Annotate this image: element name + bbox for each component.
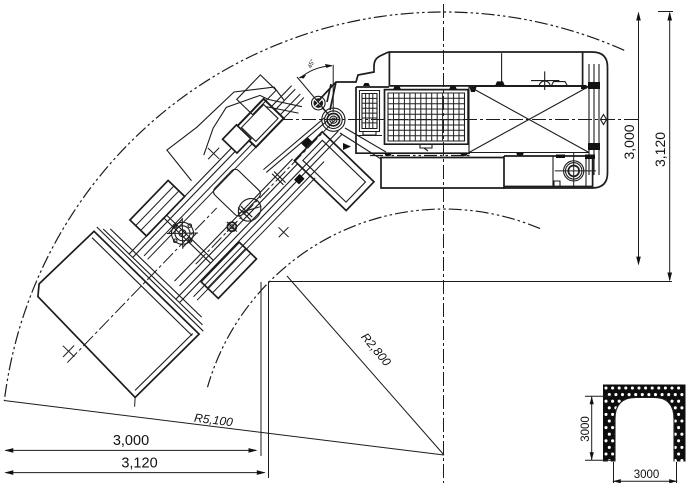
svg-text:3,000: 3,000 <box>621 124 637 159</box>
svg-text:3000: 3000 <box>634 469 660 481</box>
svg-text:3000: 3000 <box>580 416 592 442</box>
svg-text:3,000: 3,000 <box>113 433 149 449</box>
svg-text:3,120: 3,120 <box>652 132 668 167</box>
svg-text:3,120: 3,120 <box>121 456 157 472</box>
